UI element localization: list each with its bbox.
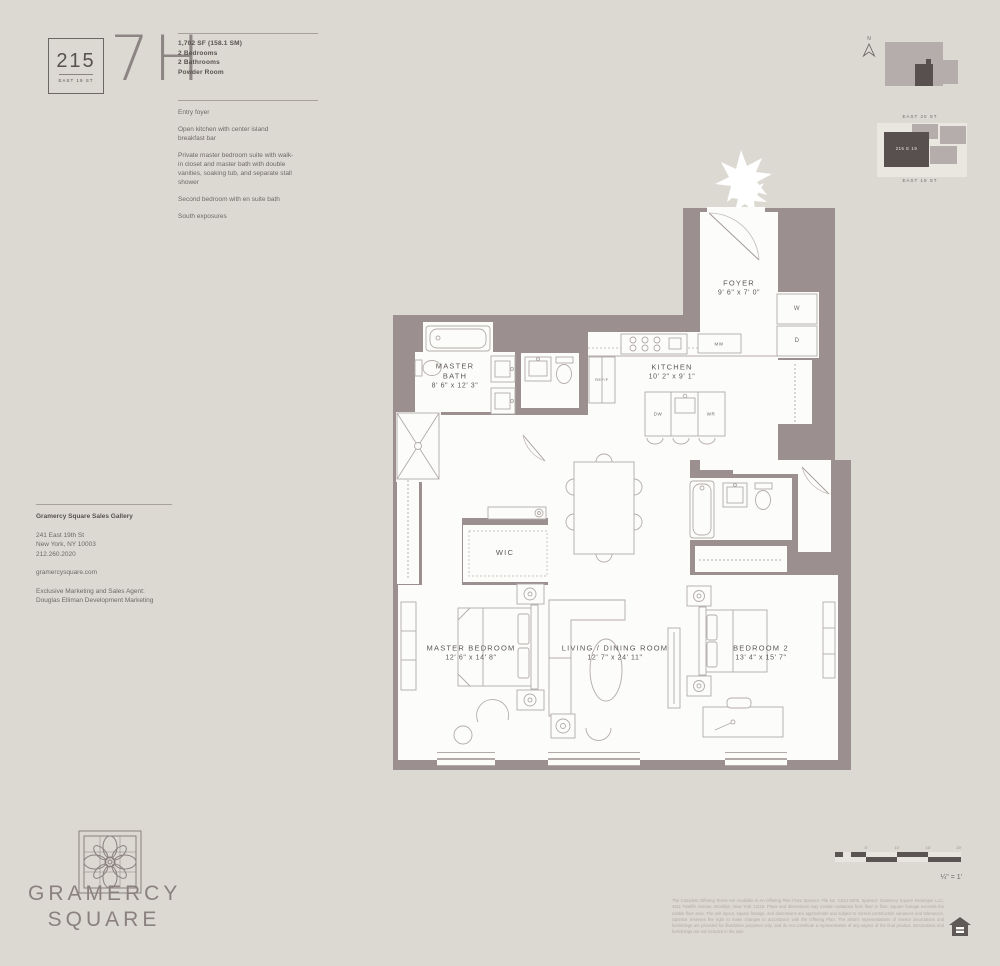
stats-rule [178, 33, 318, 34]
label-washer: W [794, 306, 800, 312]
stat-powder: Powder Room [178, 68, 328, 78]
label-wic: WIC [496, 548, 514, 558]
badge-divider [59, 74, 93, 75]
washer-dryer-icon [777, 294, 817, 356]
label-fridge: REF/F [595, 378, 608, 382]
dresser2-icon [823, 602, 835, 678]
badge-number: 215 [56, 50, 95, 72]
label-kitchen: KITCHEN 10' 2" x 9' 1" [649, 363, 696, 382]
siteplan-building-b [940, 126, 966, 144]
siteplan-215e19-label: 215 E 19 [884, 146, 929, 151]
scale-tick: 10' [894, 845, 899, 850]
label-dryer: D [795, 338, 800, 344]
suite-door [523, 435, 545, 461]
north-arrow-icon [862, 43, 876, 58]
bedroom-chair-icon [454, 700, 509, 744]
fixtures-overlay [393, 150, 853, 770]
kitchen-island [645, 392, 725, 444]
scale-ratio: ¼" = 1' [862, 874, 962, 881]
label-dishwasher: DW [654, 412, 663, 417]
bathtub2-icon [690, 481, 714, 538]
contact-rule [36, 504, 172, 505]
feature-list: Entry foyer Open kitchen with center isl… [178, 108, 296, 229]
side-table-lamp-icon [551, 714, 575, 738]
north-label: N [863, 36, 875, 42]
scale-tick: 5' [865, 845, 868, 850]
bathtub-icon [426, 326, 490, 351]
street-label-east20: EAST 20 ST [875, 114, 965, 119]
bedroom2-door [802, 467, 829, 494]
sink2-icon [723, 483, 747, 507]
brochure-page: 215 EAST 19 ST 7H 1,702 SF (158.1 SM) 2 … [0, 0, 1000, 966]
address-badge: 215 EAST 19 ST [48, 38, 104, 94]
floor-plan: FOYER 9' 6" x 7' 0" KITCHEN 10' 2" x 9' … [393, 150, 853, 770]
keyplan-unit-marker [915, 64, 933, 86]
sales-gallery-title: Gramercy Square Sales Gallery [36, 512, 196, 522]
badge-street: EAST 19 ST [59, 78, 94, 83]
feature-item: Open kitchen with center island breakfas… [178, 125, 296, 143]
entry-door [707, 207, 765, 260]
contact-address-line: 241 East 19th St [36, 531, 196, 541]
street-label-east19: EAST 19 ST [875, 178, 965, 183]
label-foyer: FOYER 9' 6" x 7' 0" [718, 279, 760, 298]
logo-text-square: SQUARE [28, 908, 180, 932]
feature-item: South exposures [178, 212, 296, 221]
siteplan-building-c [930, 146, 957, 164]
double-vanity-icon [491, 356, 515, 414]
armchair-icon [586, 728, 611, 741]
offering-disclaimer: The Complete Offering Terms Are Availabl… [672, 898, 944, 936]
bed2-icon [699, 607, 767, 675]
label-microwave: MW [715, 342, 724, 347]
scale-bar: 5' 10' 15' 20' [835, 851, 961, 863]
range-icon [621, 334, 687, 354]
contact-website: gramercysquare.com [36, 568, 196, 578]
label-master-bath: MASTER BATH 8' 6" x 12' 3" [423, 362, 487, 391]
contact-phone: 212.260.2020 [36, 550, 196, 560]
shower-icon [397, 413, 439, 479]
toilet2-icon [755, 483, 772, 510]
hall-console-icon [488, 507, 546, 519]
agent-line: Exclusive Marketing and Sales Agent: [36, 587, 196, 597]
feature-item: Private master bedroom suite with walk-i… [178, 151, 296, 187]
stat-bathrooms: 2 Bathrooms [178, 58, 328, 68]
media-console-icon [668, 628, 680, 708]
label-wine-ref: WR [707, 412, 716, 417]
powder-toilet-icon [556, 357, 573, 384]
stat-sf: 1,702 SF (158.1 SM) [178, 39, 328, 49]
scale-tick: 15' [925, 845, 930, 850]
keyplan-wing [943, 60, 958, 84]
desk-icon [703, 698, 783, 737]
powder-sink-icon [525, 357, 551, 381]
feature-item: Entry foyer [178, 108, 296, 117]
label-living: LIVING / DINING ROOM 12' 7" x 24' 11" [535, 644, 695, 663]
features-rule [178, 100, 318, 101]
dining-table-icon [566, 454, 642, 562]
contact-address-line: New York, NY 10003 [36, 540, 196, 550]
agent-line: Douglas Elliman Development Marketing [36, 596, 196, 606]
label-bedroom2: BEDROOM 2 13' 4" x 15' 7" [706, 644, 816, 663]
scale-tick: 20' [956, 845, 961, 850]
stat-bedrooms: 2 Bedrooms [178, 49, 328, 59]
equal-housing-icon [948, 915, 972, 939]
label-master-bedroom: MASTER BEDROOM 12' 6" x 14' 8" [406, 644, 536, 663]
logo-text-gramercy: GRAMERCY [28, 882, 180, 906]
contact-block: Gramercy Square Sales Gallery 241 East 1… [36, 512, 196, 606]
keyplan-building [885, 42, 943, 86]
feature-item: Second bedroom with en suite bath [178, 195, 296, 204]
entry-plant-decoration [715, 150, 772, 212]
unit-stats: 1,702 SF (158.1 SM) 2 Bedrooms 2 Bathroo… [178, 39, 328, 77]
